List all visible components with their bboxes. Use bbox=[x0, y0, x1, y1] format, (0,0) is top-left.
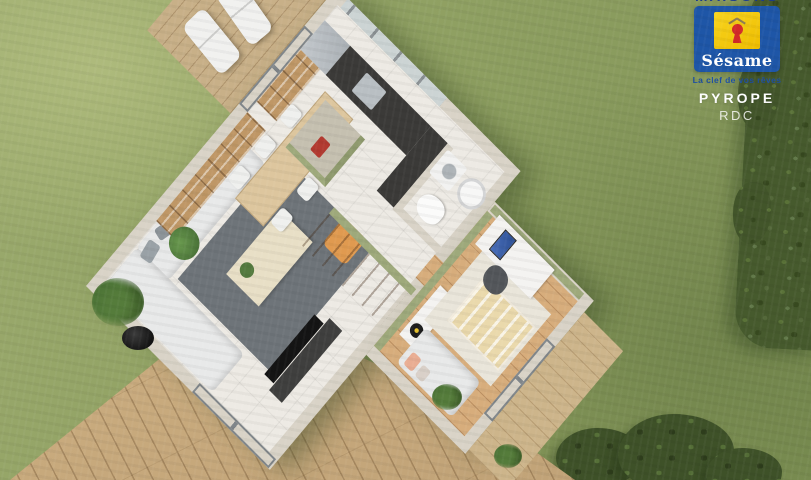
corner-plant-pot bbox=[122, 326, 154, 350]
brand-tagline: La clef de vos rêves bbox=[672, 75, 802, 85]
floorplan-render-scene: MAISONS Sésame La clef de vos rêves PYRO… bbox=[0, 0, 811, 480]
brand-name: Sésame bbox=[701, 51, 772, 70]
plan-name: PYROPE bbox=[682, 90, 792, 106]
corner-plant-foliage bbox=[92, 278, 144, 326]
logo-keyhole-icon bbox=[714, 12, 760, 49]
terrace-tuft bbox=[494, 444, 522, 468]
floor-label: RDC bbox=[682, 108, 792, 123]
sesame-logo: Sésame bbox=[694, 6, 780, 72]
brand-top-text: MAISONS bbox=[682, 0, 792, 5]
terrace-tuft bbox=[432, 384, 462, 410]
